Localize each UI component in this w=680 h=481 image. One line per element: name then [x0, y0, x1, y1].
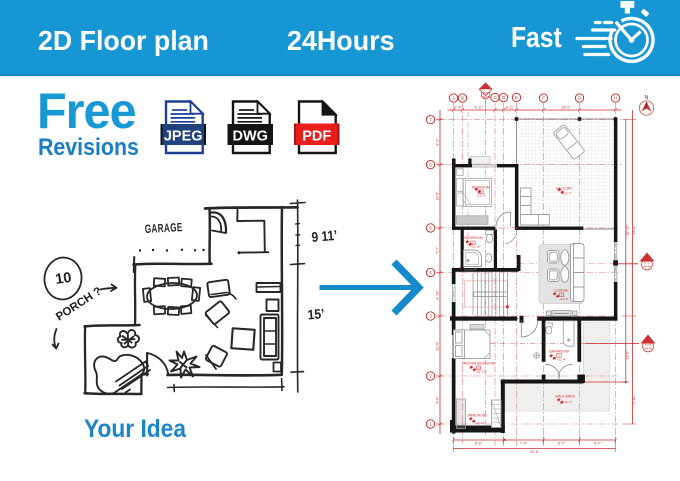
svg-text:H: H — [614, 96, 617, 101]
svg-text:8'-6": 8'-6" — [475, 442, 483, 446]
svg-text:8'-11": 8'-11" — [505, 106, 515, 110]
svg-text:1: 1 — [429, 422, 432, 427]
svg-text:+12'-0": +12'-0" — [476, 194, 485, 198]
svg-text:7'-7": 7'-7" — [436, 246, 440, 254]
svg-text:11'-6": 11'-6" — [625, 350, 629, 360]
svg-text:8'-10": 8'-10" — [436, 290, 440, 300]
svg-text:8'-7": 8'-7" — [558, 442, 566, 446]
svg-text:+11'-4": +11'-4" — [557, 358, 566, 362]
svg-text:11'-6": 11'-6" — [436, 191, 440, 201]
svg-text:N: N — [645, 95, 649, 101]
svg-text:G: G — [578, 96, 582, 101]
svg-text:2: 2 — [429, 374, 432, 379]
svg-text:WARDROBE: WARDROBE — [468, 414, 489, 418]
svg-text:18'-0": 18'-0" — [561, 106, 571, 110]
svg-text:B: B — [461, 96, 464, 101]
svg-text:B-B: B-B — [483, 92, 488, 96]
svg-text:+11'-7": +11'-7" — [563, 400, 572, 404]
svg-text:MASTER BEDROOM: MASTER BEDROOM — [462, 362, 495, 366]
svg-text:9'-6": 9'-6" — [436, 396, 440, 404]
svg-text:7'-4": 7'-4" — [520, 442, 528, 446]
svg-text:3: 3 — [429, 314, 432, 319]
svg-text:AR-08: AR-08 — [482, 95, 490, 99]
svg-text:5: 5 — [429, 226, 432, 231]
svg-text:+11'-10": +11'-10" — [470, 245, 481, 249]
svg-text:4: 4 — [429, 270, 432, 275]
svg-text:+11'-10": +11'-10" — [475, 421, 486, 425]
svg-text:BATHROOM: BATHROOM — [463, 236, 483, 240]
svg-text:F: F — [542, 96, 545, 101]
svg-text:WALK AREA: WALK AREA — [555, 395, 575, 399]
svg-text:E: E — [515, 95, 518, 100]
svg-text:29'-6": 29'-6" — [530, 450, 540, 454]
svg-text:LOUNGE: LOUNGE — [554, 289, 569, 293]
svg-text:AR-09: AR-09 — [644, 347, 652, 351]
svg-text:AR-09: AR-09 — [643, 265, 651, 269]
svg-text:2'-4": 2'-4" — [454, 106, 462, 110]
svg-text:6: 6 — [429, 162, 432, 167]
svg-text:18'-10": 18'-10" — [625, 224, 629, 236]
svg-text:9'-11": 9'-11" — [474, 106, 484, 110]
svg-text:+12'-0": +12'-0" — [559, 297, 568, 301]
svg-text:+11'-10": +11'-10" — [476, 370, 487, 374]
svg-text:7: 7 — [429, 117, 432, 122]
svg-text:8'-2": 8'-2" — [436, 138, 440, 146]
svg-text:9'-11": 9'-11" — [632, 395, 636, 405]
svg-text:8'-7": 8'-7" — [594, 442, 602, 446]
svg-text:19'-8": 19'-8" — [632, 225, 636, 235]
svg-text:11'-6": 11'-6" — [436, 341, 440, 351]
